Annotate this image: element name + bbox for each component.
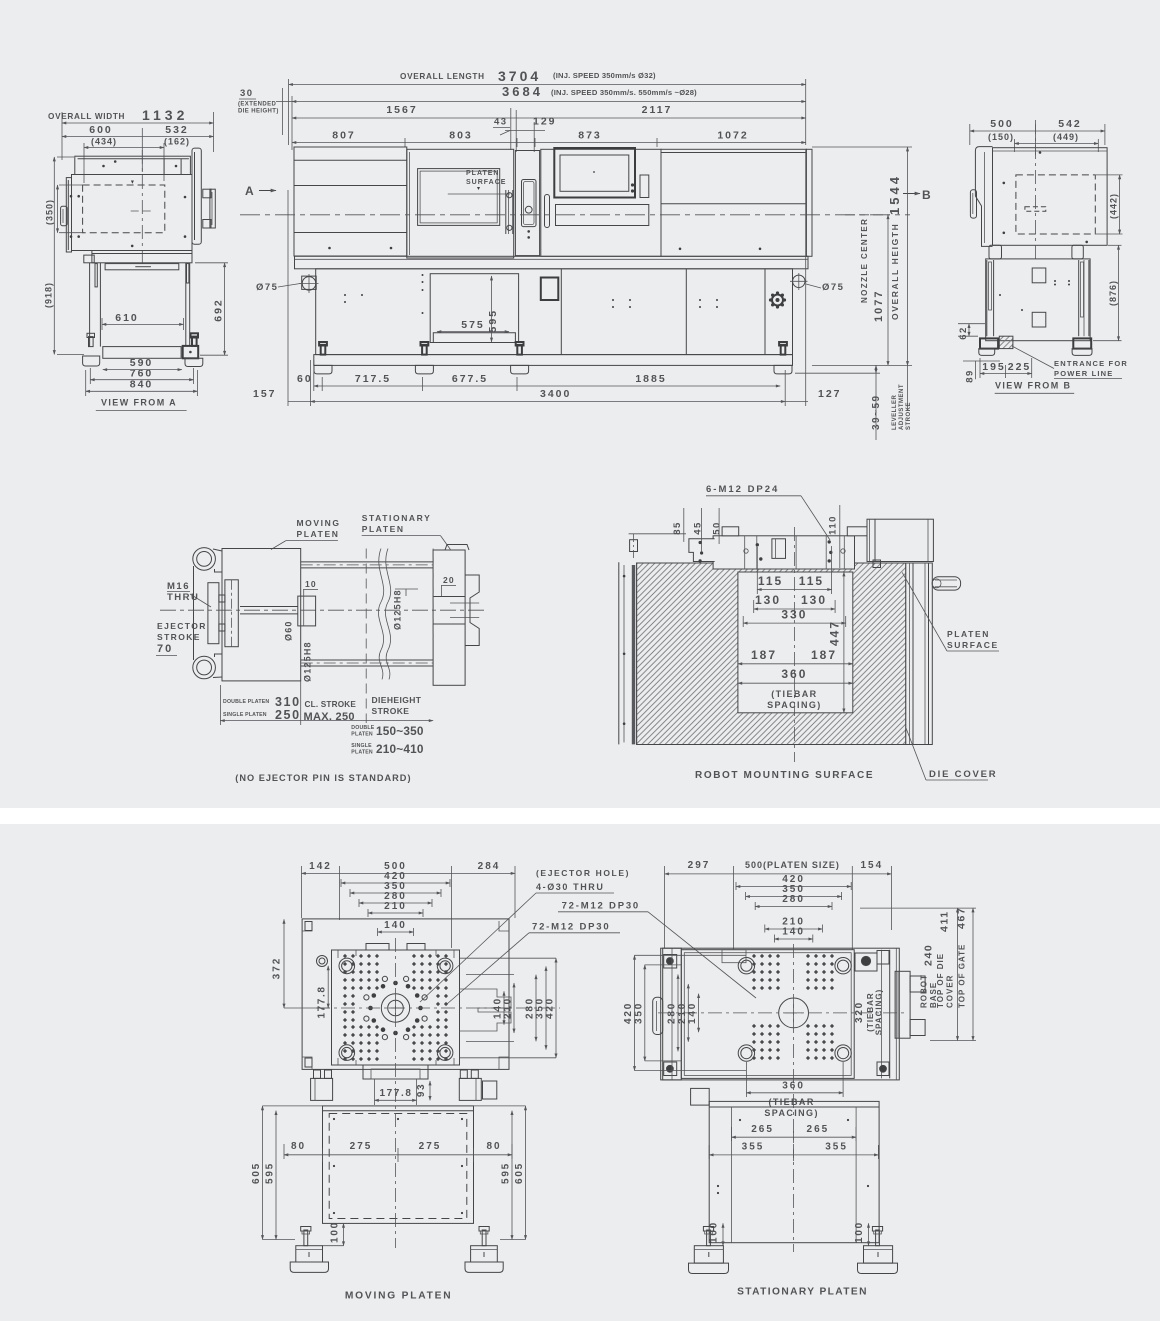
svg-text:1077: 1077 [873,290,885,322]
svg-text:(876): (876) [1108,280,1118,306]
svg-text:SPACING): SPACING) [767,700,822,710]
svg-text:THRU: THRU [167,592,199,603]
svg-text:157: 157 [253,388,277,400]
svg-text:89: 89 [965,369,976,383]
svg-text:807: 807 [332,130,356,142]
svg-text:62: 62 [958,326,969,340]
svg-text:ROBOT MOUNTING SURFACE: ROBOT MOUNTING SURFACE [695,770,874,781]
svg-text:SINGLE: SINGLE [351,743,372,749]
svg-text:677.5: 677.5 [452,373,488,385]
svg-text:355: 355 [742,1142,765,1153]
svg-text:(350): (350) [45,199,55,225]
svg-text:500: 500 [990,118,1014,130]
svg-text:30: 30 [240,88,254,99]
svg-text:210: 210 [384,901,407,912]
svg-text:LEVELLER: LEVELLER [892,394,898,430]
svg-text:(INJ. SPEED 350mm/s. 550mm/s: (INJ. SPEED 350mm/s. 550mm/s ~Ø28) [551,88,697,97]
svg-text:70: 70 [157,643,173,655]
svg-text:STATIONARY PLATEN: STATIONARY PLATEN [737,1287,868,1298]
svg-text:A: A [245,184,255,198]
svg-text:TOP OF GATE: TOP OF GATE [958,944,967,1008]
svg-text:VIEW FROM B: VIEW FROM B [995,381,1071,391]
svg-text:OVERALL WIDTH: OVERALL WIDTH [48,112,125,121]
svg-text:355: 355 [825,1142,848,1153]
svg-text:93: 93 [416,1083,427,1097]
svg-text:B: B [922,188,932,202]
svg-text:ROBOT: ROBOT [920,974,929,1008]
svg-text:110: 110 [828,515,839,535]
svg-text:Ø125H8: Ø125H8 [303,641,313,682]
svg-text:(INJ. SPEED 350mm/s Ø32): (INJ. SPEED 350mm/s Ø32) [553,71,656,80]
svg-text:3704: 3704 [498,68,541,84]
svg-text:MOVING PLATEN: MOVING PLATEN [345,1291,453,1302]
svg-text:275: 275 [419,1141,442,1152]
svg-text:VIEW FROM A: VIEW FROM A [101,398,177,408]
svg-text:873: 873 [578,130,602,142]
svg-text:STROKE: STROKE [372,706,410,716]
svg-text:(150): (150) [988,132,1014,142]
svg-text:130: 130 [755,593,781,607]
svg-text:595: 595 [265,1162,276,1184]
svg-text:284: 284 [478,861,501,872]
svg-text:717.5: 717.5 [355,373,391,385]
svg-text:EJECTOR: EJECTOR [157,621,207,631]
svg-text:265: 265 [807,1124,830,1135]
svg-text:275: 275 [350,1141,373,1152]
svg-text:(EXTENDED: (EXTENDED [238,102,277,108]
svg-text:6-M12 DP24: 6-M12 DP24 [706,484,779,495]
svg-text:72-M12 DP30: 72-M12 DP30 [532,922,610,933]
svg-text:447: 447 [828,620,842,646]
svg-text:297: 297 [688,860,711,871]
svg-text:COVER: COVER [946,975,955,1008]
svg-text:STROKE: STROKE [906,402,912,430]
svg-text:320: 320 [854,1001,865,1023]
svg-text:OVERALL LENGTH: OVERALL LENGTH [400,72,485,81]
svg-text:115: 115 [799,574,824,588]
svg-text:610: 610 [115,312,139,324]
svg-text:130: 130 [801,593,827,607]
svg-text:(918): (918) [44,282,54,308]
svg-text:127: 127 [818,388,842,400]
svg-text:STROKE: STROKE [157,632,201,642]
svg-text:360: 360 [781,667,807,681]
svg-text:50: 50 [712,521,723,535]
svg-text:187: 187 [751,648,777,662]
svg-text:80: 80 [486,1141,501,1152]
svg-text:DIE HEIGHT): DIE HEIGHT) [238,109,279,115]
svg-text:100: 100 [330,1221,341,1243]
svg-text:10: 10 [305,579,317,589]
svg-text:330: 330 [781,608,807,622]
svg-text:280: 280 [782,894,805,905]
svg-text:500(PLATEN SIZE): 500(PLATEN SIZE) [745,860,840,870]
svg-text:265: 265 [751,1124,774,1135]
svg-text:100: 100 [854,1221,865,1243]
svg-text:1132: 1132 [142,107,188,123]
svg-text:PLATEN: PLATEN [362,524,405,534]
svg-text:(449): (449) [1053,132,1079,142]
svg-text:2117: 2117 [642,104,673,116]
svg-text:4-Ø30 THRU: 4-Ø30 THRU [536,882,605,892]
svg-text:DIEHEIGHT: DIEHEIGHT [372,695,422,705]
svg-text:840: 840 [130,379,154,391]
svg-text:72-M12 DP30: 72-M12 DP30 [562,901,640,912]
svg-text:MOVING: MOVING [297,518,341,528]
svg-text:210~410: 210~410 [376,742,424,756]
svg-text:MAX. 250: MAX. 250 [304,711,355,723]
svg-text:3684: 3684 [502,84,543,99]
svg-text:692: 692 [213,298,225,322]
svg-text:595: 595 [487,309,499,333]
svg-text:532: 532 [165,124,189,136]
svg-text:DIE COVER: DIE COVER [929,769,997,780]
svg-text:350: 350 [633,1002,644,1024]
svg-text:PLATEN: PLATEN [351,732,373,738]
svg-text:(NO EJECTOR PIN IS STANDARD): (NO EJECTOR PIN IS STANDARD) [235,773,411,783]
svg-text:225: 225 [1008,361,1032,373]
svg-text:195: 195 [982,361,1006,373]
svg-text:803: 803 [449,130,473,142]
svg-text:SPACING): SPACING) [875,989,884,1036]
svg-text:605: 605 [251,1162,262,1184]
svg-text:575: 575 [461,319,485,331]
svg-text:140: 140 [384,920,407,931]
svg-text:ADJUSTMENT: ADJUSTMENT [899,384,905,430]
svg-text:129: 129 [533,116,557,128]
svg-text:20: 20 [443,575,455,585]
svg-text:1544: 1544 [887,174,902,215]
svg-text:Ø75: Ø75 [822,282,844,293]
svg-text:600: 600 [89,124,113,136]
svg-text:310: 310 [275,695,301,709]
svg-text:PLATEN: PLATEN [297,529,340,539]
svg-text:SURFACE: SURFACE [466,179,506,186]
svg-text:PLATEN: PLATEN [466,170,499,177]
svg-text:POWER LINE: POWER LINE [1054,369,1114,378]
svg-text:NOZZLE CENTER: NOZZLE CENTER [860,218,869,303]
svg-text:SINGLE PLATEN: SINGLE PLATEN [223,712,267,718]
svg-text:85: 85 [672,521,683,535]
svg-text:(162): (162) [164,137,190,147]
svg-text:PLATEN: PLATEN [947,629,990,639]
svg-text:154: 154 [860,860,883,871]
svg-text:150~350: 150~350 [376,724,424,738]
svg-text:240: 240 [923,944,935,966]
svg-text:1072: 1072 [717,130,748,142]
svg-text:1567: 1567 [386,104,417,116]
svg-text:(TIEBAR: (TIEBAR [771,689,817,699]
svg-text:187: 187 [811,648,837,662]
svg-text:372: 372 [272,957,283,980]
svg-text:OVERALL HEIGTH: OVERALL HEIGTH [890,223,900,320]
svg-text:(EJECTOR HOLE): (EJECTOR HOLE) [536,868,630,878]
svg-text:M16: M16 [167,581,190,592]
svg-text:Ø75: Ø75 [256,282,278,293]
svg-text:Ø125H8: Ø125H8 [393,589,403,630]
svg-text:(434): (434) [91,137,117,147]
svg-text:DOUBLE: DOUBLE [351,725,374,731]
svg-text:177.8: 177.8 [379,1088,412,1099]
svg-text:SPACING): SPACING) [764,1108,819,1118]
svg-text:411: 411 [939,910,951,932]
svg-text:39~59: 39~59 [871,394,882,430]
svg-text:605: 605 [514,1162,525,1184]
svg-text:(TIEBAR: (TIEBAR [768,1097,814,1107]
svg-text:80: 80 [291,1141,306,1152]
svg-text:115: 115 [758,574,783,588]
svg-text:1885: 1885 [635,373,666,385]
svg-text:SURFACE: SURFACE [947,640,999,650]
svg-text:ENTRANCE FOR: ENTRANCE FOR [1054,359,1128,368]
svg-text:595: 595 [501,1162,512,1184]
svg-text:DOUBLE PLATEN: DOUBLE PLATEN [223,699,269,705]
svg-text:140: 140 [782,927,805,938]
svg-text:PLATEN: PLATEN [351,750,373,756]
svg-text:Ø60: Ø60 [284,620,294,641]
svg-text:TOP OF DIE: TOP OF DIE [936,953,945,1008]
svg-text:CL. STROKE: CL. STROKE [305,700,357,709]
svg-text:(442): (442) [1109,193,1119,219]
svg-text:542: 542 [1058,118,1082,130]
svg-text:43: 43 [494,117,508,128]
svg-text:177.8: 177.8 [317,985,328,1018]
svg-text:142: 142 [309,861,332,872]
svg-text:3400: 3400 [540,388,571,400]
svg-text:250: 250 [275,708,301,722]
svg-text:STATIONARY: STATIONARY [362,513,432,523]
